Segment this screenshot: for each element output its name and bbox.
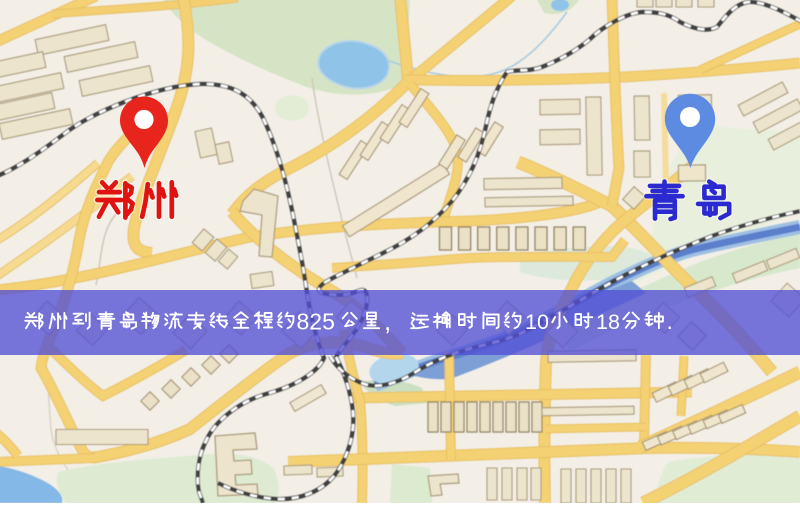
svg-text:,: , — [384, 306, 391, 336]
svg-text:18: 18 — [596, 310, 620, 334]
svg-text:10: 10 — [525, 310, 549, 334]
svg-text:825: 825 — [297, 309, 335, 335]
svg-text:.: . — [667, 308, 673, 334]
